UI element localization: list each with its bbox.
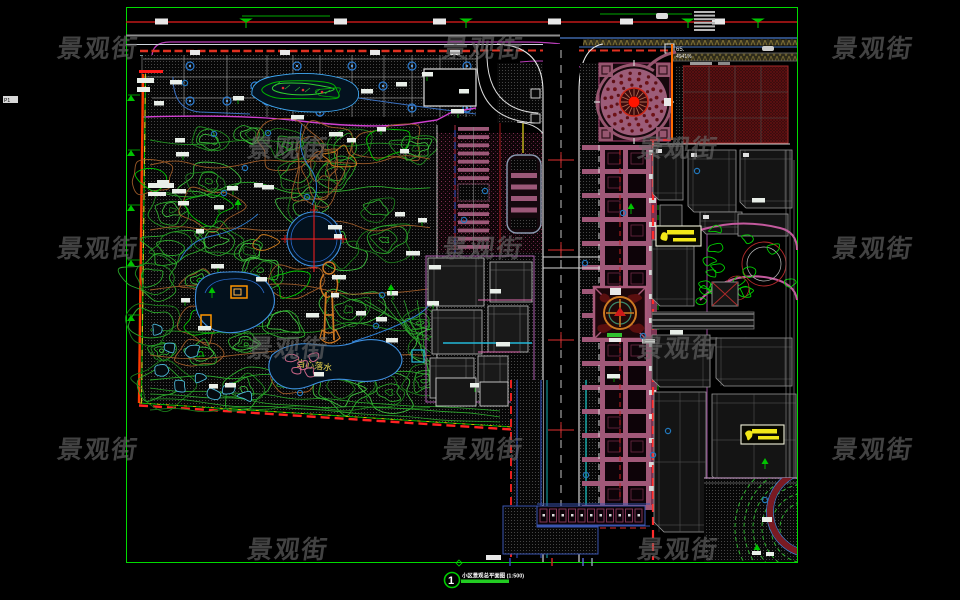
svg-text:景观街: 景观街 <box>441 435 526 464</box>
svg-text:景观街: 景观街 <box>246 134 331 163</box>
svg-text:景观街: 景观街 <box>636 134 721 163</box>
svg-text:景观街: 景观街 <box>56 435 141 464</box>
svg-text:景观街: 景观街 <box>441 234 526 263</box>
svg-text:P1: P1 <box>4 98 10 104</box>
svg-text:4941%: 4941% <box>676 54 692 60</box>
svg-text:景观街: 景观街 <box>246 535 331 564</box>
svg-text:1: 1 <box>448 575 454 587</box>
svg-text:景观街: 景观街 <box>246 334 331 363</box>
svg-text:小区景观总平面图 (1:500): 小区景观总平面图 (1:500) <box>462 572 524 580</box>
svg-text:景观街: 景观街 <box>441 34 526 63</box>
svg-text:景观街: 景观街 <box>831 234 916 263</box>
svg-text:景观街: 景观街 <box>636 535 721 564</box>
svg-text:景观街: 景观街 <box>636 334 721 363</box>
svg-text:景观街: 景观街 <box>56 234 141 263</box>
svg-text:景观街: 景观街 <box>831 34 916 63</box>
svg-text:景观街: 景观街 <box>831 435 916 464</box>
svg-text:景观街: 景观街 <box>56 34 141 63</box>
svg-text:65.: 65. <box>676 47 685 53</box>
